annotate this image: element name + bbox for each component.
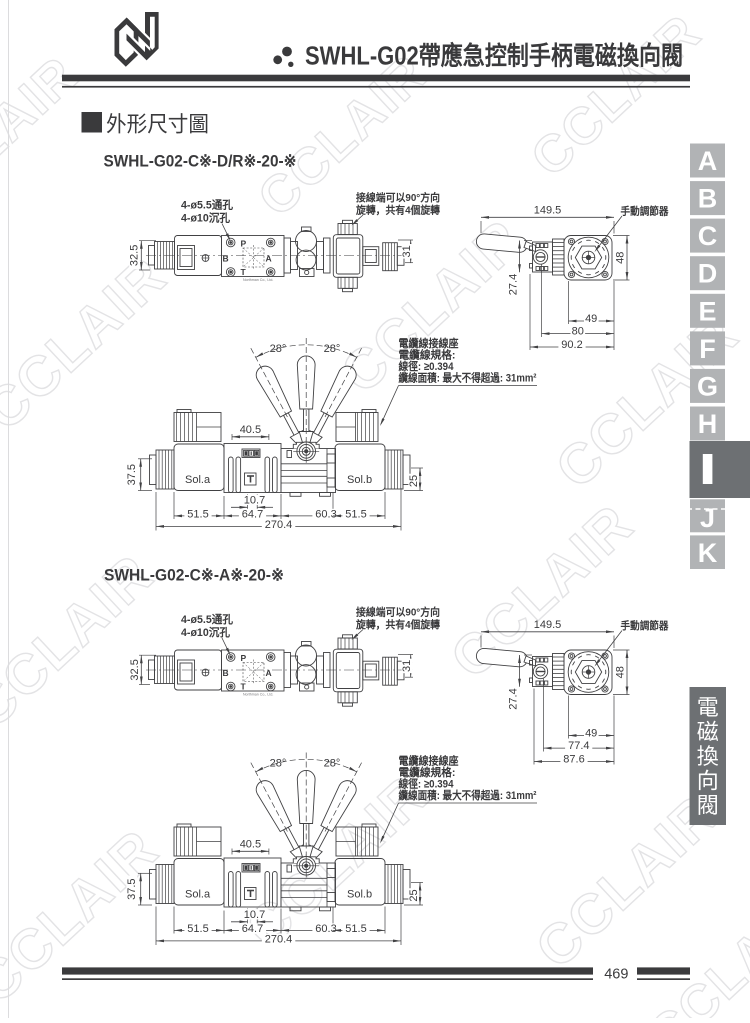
svg-text:旋轉，共有4個旋轉: 旋轉，共有4個旋轉	[355, 618, 440, 631]
svg-text:線徑: ≥0.394: 線徑: ≥0.394	[399, 359, 455, 373]
svg-text:Northman Co., Ltd.: Northman Co., Ltd.	[243, 693, 273, 697]
svg-text:Sol.b: Sol.b	[347, 474, 372, 486]
svg-text:T: T	[241, 267, 247, 277]
svg-text:手動調節器: 手動調節器	[621, 619, 669, 632]
svg-text:P: P	[241, 653, 247, 663]
svg-text:向: 向	[697, 768, 719, 793]
svg-text:51.5: 51.5	[345, 508, 366, 520]
svg-text:77.4: 77.4	[568, 740, 589, 752]
svg-text:48: 48	[615, 252, 627, 264]
svg-text:25: 25	[408, 889, 420, 901]
svg-text:270.4: 270.4	[265, 519, 293, 531]
svg-text:4-ø10沉孔: 4-ø10沉孔	[181, 211, 230, 225]
svg-text:Sol.a: Sol.a	[185, 889, 211, 901]
svg-text:接線端可以90°方向: 接線端可以90°方向	[356, 606, 440, 619]
svg-text:90.2: 90.2	[561, 339, 582, 351]
svg-text:51.5: 51.5	[187, 508, 208, 520]
svg-text:87.6: 87.6	[563, 754, 584, 766]
svg-text:Sol.b: Sol.b	[347, 889, 372, 901]
svg-text:P: P	[241, 239, 247, 249]
svg-text:4-ø5.5通孔: 4-ø5.5通孔	[181, 199, 233, 212]
svg-text:51.5: 51.5	[187, 923, 208, 935]
svg-text:Northman Co., Ltd.: Northman Co., Ltd.	[243, 278, 273, 282]
svg-text:48: 48	[614, 666, 626, 678]
svg-text:SWHL-G02帶應急控制手柄電磁換向閥: SWHL-G02帶應急控制手柄電磁換向閥	[305, 42, 683, 71]
svg-text:手動調節器: 手動調節器	[621, 205, 669, 218]
svg-text:閥: 閥	[697, 793, 719, 818]
svg-text:電纜線規格:: 電纜線規格:	[399, 765, 456, 779]
svg-text:60.3: 60.3	[315, 508, 336, 520]
svg-text:電纜線接線座: 電纜線接線座	[399, 754, 459, 768]
svg-text:旋轉，共有4個旋轉: 旋轉，共有4個旋轉	[355, 204, 440, 217]
svg-text:4-ø5.5通孔: 4-ø5.5通孔	[181, 613, 233, 626]
svg-text:J: J	[700, 503, 715, 533]
svg-text:E: E	[698, 296, 716, 326]
svg-text:B: B	[223, 254, 229, 264]
svg-text:B: B	[698, 184, 718, 214]
svg-text:28°: 28°	[324, 343, 341, 355]
svg-text:80: 80	[572, 326, 584, 338]
svg-text:27.4: 27.4	[508, 688, 520, 709]
svg-text:469: 469	[604, 967, 628, 983]
svg-text:28°: 28°	[270, 343, 287, 355]
svg-text:28°: 28°	[324, 758, 341, 770]
svg-text:4-ø10沉孔: 4-ø10沉孔	[181, 625, 230, 639]
svg-text:49: 49	[585, 313, 597, 325]
svg-text:10.7: 10.7	[244, 909, 265, 921]
svg-text:A: A	[266, 254, 272, 264]
svg-text:37.5: 37.5	[126, 464, 138, 485]
svg-text:27.4: 27.4	[508, 274, 520, 295]
svg-text:D: D	[698, 259, 718, 289]
svg-text:外形尺寸圖: 外形尺寸圖	[106, 113, 209, 137]
svg-text:64.7: 64.7	[242, 923, 263, 935]
svg-text:接線端可以90°方向: 接線端可以90°方向	[356, 191, 440, 204]
svg-text:F: F	[699, 334, 716, 364]
svg-text:25: 25	[408, 475, 420, 487]
svg-text:40.5: 40.5	[240, 838, 261, 850]
svg-text:電纜線接線座: 電纜線接線座	[399, 336, 459, 350]
svg-text:T: T	[241, 682, 247, 692]
svg-text:H: H	[698, 409, 718, 439]
svg-text:40.5: 40.5	[240, 424, 261, 436]
svg-text:64.7: 64.7	[242, 508, 263, 520]
svg-text:SWHL-G02-C※-D/R※-20-※: SWHL-G02-C※-D/R※-20-※	[104, 153, 297, 171]
svg-text:270.4: 270.4	[265, 934, 293, 946]
svg-text:A: A	[266, 668, 272, 678]
svg-text:32.5: 32.5	[129, 659, 141, 680]
svg-text:28°: 28°	[270, 758, 287, 770]
svg-text:31: 31	[401, 660, 413, 672]
svg-text:32.5: 32.5	[129, 245, 141, 266]
svg-text:G: G	[697, 371, 718, 401]
svg-text:纜線面積: 最大不得超過: 31mm²: 纜線面積: 最大不得超過: 31mm²	[399, 788, 537, 802]
svg-text:纜線面積: 最大不得超過: 31mm²: 纜線面積: 最大不得超過: 31mm²	[399, 371, 537, 385]
svg-text:換: 換	[697, 744, 719, 769]
svg-text:49: 49	[585, 728, 597, 740]
svg-text:149.5: 149.5	[534, 619, 562, 631]
svg-text:37.5: 37.5	[126, 878, 138, 899]
svg-text:電纜線規格:: 電纜線規格:	[399, 348, 456, 362]
svg-text:Sol.a: Sol.a	[185, 474, 211, 486]
svg-text:60.3: 60.3	[315, 923, 336, 935]
svg-text:A: A	[698, 146, 718, 176]
svg-text:B: B	[223, 668, 229, 678]
svg-text:51.5: 51.5	[345, 923, 366, 935]
svg-text:149.5: 149.5	[534, 204, 562, 216]
svg-text:31: 31	[401, 245, 413, 257]
svg-text:K: K	[698, 538, 718, 568]
svg-text:10.7: 10.7	[244, 494, 265, 506]
svg-text:C: C	[698, 221, 718, 251]
svg-text:電: 電	[697, 695, 719, 720]
svg-text:線徑: ≥0.394: 線徑: ≥0.394	[399, 777, 455, 791]
svg-text:SWHL-G02-C※-A※-20-※: SWHL-G02-C※-A※-20-※	[104, 567, 284, 585]
svg-text:磁: 磁	[697, 720, 719, 745]
